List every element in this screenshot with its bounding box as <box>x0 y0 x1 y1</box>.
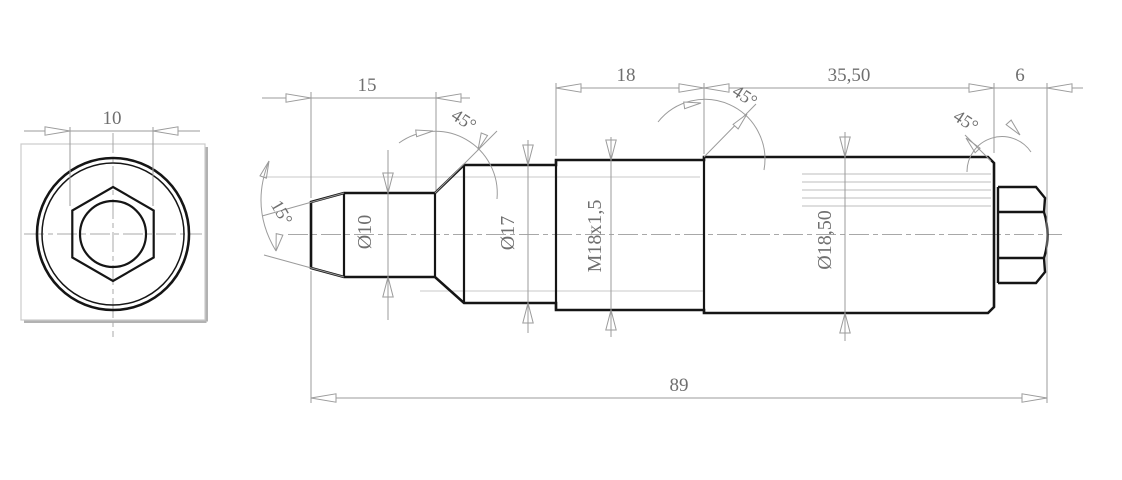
dim-dia-body-value: Ø18,50 <box>814 210 836 269</box>
end-view: 10 <box>21 108 207 337</box>
dim-thread-spec: M18x1,5 <box>584 137 616 337</box>
dim-dia-body: Ø18,50 <box>814 132 850 341</box>
angle-end-chamfer-value: 45° <box>950 106 982 137</box>
dim-thread-spec-value: M18x1,5 <box>584 200 606 273</box>
technical-drawing: 10 <box>0 0 1122 480</box>
angle-collar-chamfer: 45° <box>399 105 497 199</box>
dim-dia-tip-value: Ø10 <box>354 215 376 249</box>
dim-tip-length: 15 <box>262 75 470 102</box>
technical-drawing-canvas: 10 <box>0 0 1122 480</box>
dim-overall-length-value: 89 <box>670 375 689 396</box>
angle-taper-value: 15° <box>267 197 297 229</box>
dim-body-length-value: 35,50 <box>828 65 871 86</box>
angle-end-chamfer: 45° <box>950 106 1031 172</box>
thread-lines <box>802 174 991 206</box>
dim-hex-width-value: 10 <box>103 108 122 129</box>
dim-dia-collar-value: Ø17 <box>497 216 519 250</box>
dim-overall-length: 89 <box>311 375 1047 402</box>
angle-collar-chamfer-value: 45° <box>448 105 480 136</box>
dim-thread-length: 18 <box>556 65 1083 92</box>
dim-thread-length-value: 18 <box>617 65 636 86</box>
dim-tip-length-value: 15 <box>358 75 377 96</box>
side-view: 15 18 35,50 6 89 Ø10 <box>260 65 1083 403</box>
dim-hex-length-value: 6 <box>1015 65 1025 86</box>
